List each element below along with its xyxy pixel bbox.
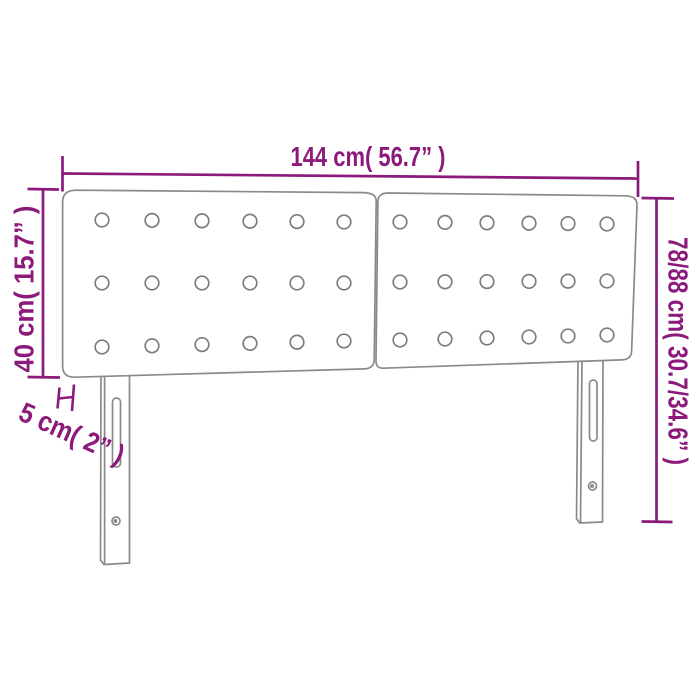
width-dimension-line xyxy=(63,174,639,179)
headboard-panel-left xyxy=(63,190,377,377)
tufting-button xyxy=(561,274,575,288)
total-height-tick-bottom xyxy=(642,522,673,523)
leg-left-screw-dot xyxy=(114,520,116,522)
panel-height-tick-bottom xyxy=(28,377,61,378)
panel-height-label: 40 cm( 15.7” ) xyxy=(9,206,40,373)
tufting-button xyxy=(195,276,209,290)
tufting-button xyxy=(95,340,109,354)
thickness-dimension xyxy=(58,385,75,412)
tufting-button xyxy=(561,217,575,231)
total-height-tick-top xyxy=(642,198,675,199)
tufting-button xyxy=(95,213,109,227)
tufting-button xyxy=(480,331,494,345)
tufting-button xyxy=(243,337,257,351)
headboard-leg-right xyxy=(577,357,604,523)
tufting-button xyxy=(600,217,614,231)
tufting-button xyxy=(522,216,536,230)
tufting-button xyxy=(393,333,407,347)
leg-right-screw-dot xyxy=(591,485,593,487)
tufting-button xyxy=(290,215,304,229)
tufting-button xyxy=(438,275,452,289)
headboard-illustration xyxy=(63,190,637,564)
tufting-button xyxy=(290,276,304,290)
tufting-button xyxy=(600,328,614,342)
thickness-dimension-line xyxy=(59,397,74,399)
tufting-button xyxy=(145,276,159,290)
tufting-button xyxy=(438,332,452,346)
tufting-button xyxy=(145,214,159,228)
tufting-button xyxy=(438,216,452,230)
tufting-button xyxy=(480,216,494,230)
tufting-button xyxy=(243,276,257,290)
tufting-button xyxy=(95,276,109,290)
tufting-button xyxy=(480,275,494,289)
tufting-button xyxy=(522,275,536,289)
total-height-label: 78/88 cm( 30.7/34.6” ) xyxy=(663,237,694,465)
tufting-button xyxy=(290,335,304,349)
tufting-button xyxy=(337,334,351,348)
tufting-button xyxy=(145,339,159,353)
leg-right-slot xyxy=(590,380,598,441)
tufting-button xyxy=(561,329,575,343)
tufting-button xyxy=(393,215,407,229)
tufting-button xyxy=(522,330,536,344)
diagram-svg: 144 cm( 56.7” ) 40 cm( 15.7” ) 78/88 cm(… xyxy=(0,0,700,700)
tufting-button xyxy=(195,214,209,228)
headboard-dimension-diagram: 144 cm( 56.7” ) 40 cm( 15.7” ) 78/88 cm(… xyxy=(0,0,700,700)
tufting-button xyxy=(337,276,351,290)
panel-height-tick-top xyxy=(28,189,60,190)
tufting-button xyxy=(337,215,351,229)
tufting-button xyxy=(600,274,614,288)
tufting-button xyxy=(393,275,407,289)
width-dimension-label: 144 cm( 56.7” ) xyxy=(291,141,446,172)
tufting-button xyxy=(243,214,257,228)
headboard-panel-right xyxy=(376,193,637,368)
tufting-button xyxy=(195,338,209,352)
